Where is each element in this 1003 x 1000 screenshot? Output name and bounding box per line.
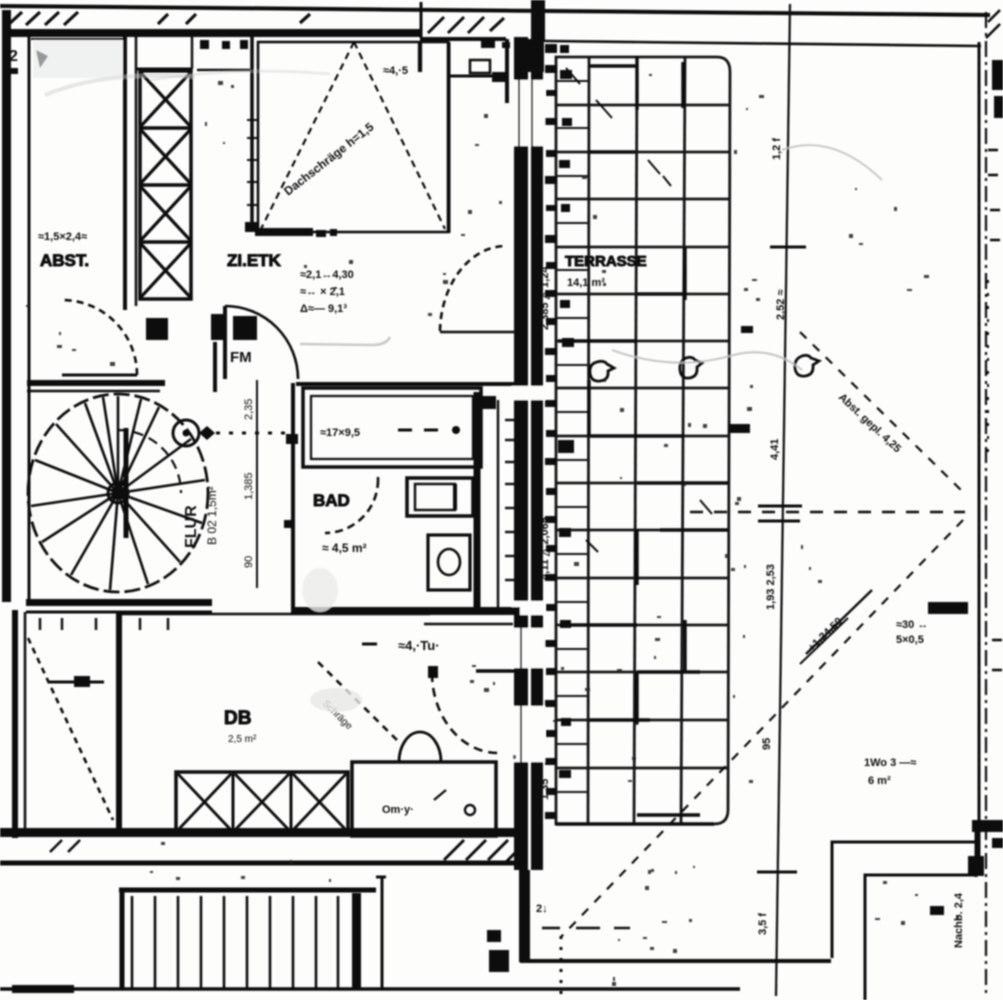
svg-text:2,52 ≈: 2,52 ≈	[775, 289, 787, 320]
svg-text:2: 2	[9, 48, 18, 65]
svg-text:4,41: 4,41	[769, 439, 781, 460]
svg-text:DB: DB	[224, 708, 251, 729]
svg-text:Om·y·: Om·y·	[382, 804, 414, 816]
svg-text:ZI.ETK: ZI.ETK	[227, 251, 282, 270]
svg-text:≈↔ × 2,1: ≈↔ × 2,1	[300, 286, 345, 298]
svg-text:BAD: BAD	[313, 491, 350, 510]
svg-text:+1,34,50: +1,34,50	[806, 616, 845, 655]
svg-text:14,1 m²: 14,1 m²	[567, 277, 605, 289]
svg-text:≈17×9,5: ≈17×9,5	[320, 427, 360, 439]
svg-text:≈2,1↔4,30: ≈2,1↔4,30	[300, 269, 354, 281]
svg-text:Δ≈— 9,1³: Δ≈— 9,1³	[300, 303, 347, 315]
svg-text:90: 90	[243, 556, 255, 568]
svg-text:Nachb. 2,4: Nachb. 2,4	[953, 892, 965, 948]
svg-text:≈ 4,5 m²: ≈ 4,5 m²	[322, 541, 367, 555]
svg-text:1,385: 1,385	[243, 472, 255, 500]
svg-text:Dachschräge h=1,5: Dachschräge h=1,5	[281, 120, 376, 199]
svg-text:1,2 f: 1,2 f	[771, 138, 783, 160]
svg-text:6 m²: 6 m²	[868, 775, 891, 787]
svg-text:B 02 1,5m²: B 02 1,5m²	[205, 486, 219, 545]
svg-text:FM: FM	[230, 349, 252, 366]
svg-text:≈30 ↔: ≈30 ↔	[896, 619, 928, 631]
svg-text:95: 95	[761, 738, 773, 750]
svg-text:5×0,5: 5×0,5	[896, 634, 924, 646]
svg-text:2,5 m²: 2,5 m²	[228, 734, 257, 745]
svg-text:ABST.: ABST.	[40, 251, 89, 270]
svg-text:TERRASSE: TERRASSE	[565, 253, 647, 270]
svg-text:FLUR: FLUR	[183, 505, 200, 548]
svg-text:3,5 f: 3,5 f	[757, 913, 769, 935]
svg-text:1,93 2,53: 1,93 2,53	[765, 564, 777, 610]
svg-text:2↓: 2↓	[536, 903, 548, 915]
svg-text:≈4,·Tu·: ≈4,·Tu·	[398, 638, 440, 653]
svg-text:2,35: 2,35	[243, 399, 255, 420]
svg-text:1Wo 3 —≈: 1Wo 3 —≈	[864, 757, 916, 769]
svg-text:≈4,·5: ≈4,·5	[383, 65, 408, 77]
svg-text:≈1,5×2,4≈: ≈1,5×2,4≈	[38, 231, 87, 243]
